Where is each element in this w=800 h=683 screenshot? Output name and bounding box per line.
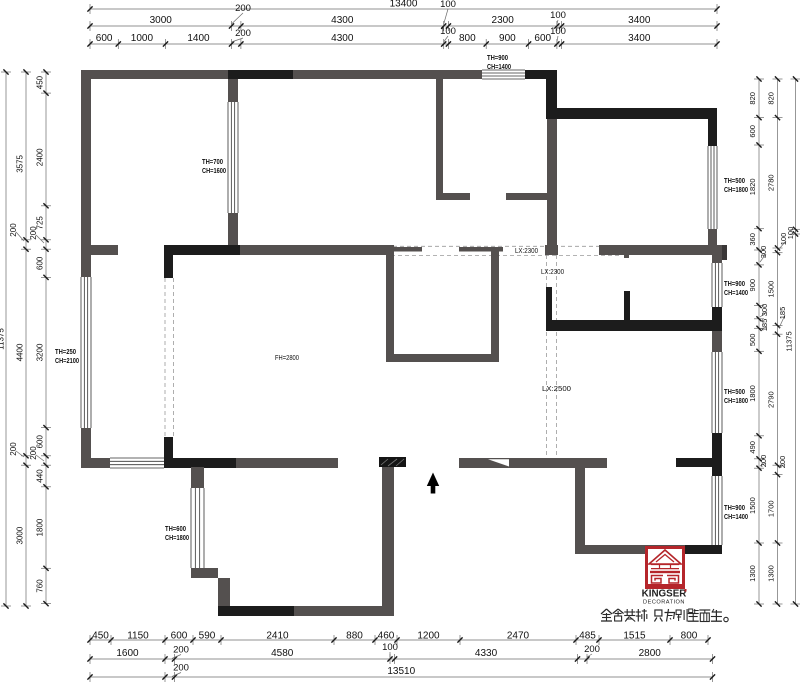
svg-text:200: 200 xyxy=(9,223,18,237)
svg-text:TH=500: TH=500 xyxy=(724,387,745,396)
svg-text:1300: 1300 xyxy=(748,565,757,582)
svg-text:760: 760 xyxy=(36,579,45,593)
svg-text:1500: 1500 xyxy=(748,497,757,514)
svg-text:13510: 13510 xyxy=(387,666,415,677)
svg-text:200: 200 xyxy=(235,28,251,39)
svg-text:200: 200 xyxy=(9,442,18,456)
svg-text:200: 200 xyxy=(173,663,189,674)
svg-text:200: 200 xyxy=(759,455,768,468)
svg-text:CH=1400: CH=1400 xyxy=(487,62,511,71)
svg-text:100: 100 xyxy=(550,26,566,37)
svg-text:TH=500: TH=500 xyxy=(724,176,745,185)
svg-text:200: 200 xyxy=(29,446,38,460)
svg-text:1000: 1000 xyxy=(131,33,154,44)
svg-text:4300: 4300 xyxy=(331,15,354,26)
svg-text:1300: 1300 xyxy=(767,565,776,582)
svg-text:200: 200 xyxy=(584,644,600,655)
svg-text:2790: 2790 xyxy=(767,391,776,408)
svg-text:800: 800 xyxy=(681,631,698,642)
svg-text:600: 600 xyxy=(96,33,113,44)
svg-text:820: 820 xyxy=(767,92,776,105)
svg-text:TH=600: TH=600 xyxy=(165,524,186,533)
svg-text:2780: 2780 xyxy=(767,174,776,191)
svg-text:TH=700: TH=700 xyxy=(202,157,223,166)
svg-text:1800: 1800 xyxy=(36,518,45,536)
svg-text:1515: 1515 xyxy=(623,631,646,642)
svg-text:DECORATION: DECORATION xyxy=(643,600,685,606)
svg-text:360: 360 xyxy=(748,233,757,246)
svg-text:600: 600 xyxy=(748,125,757,138)
svg-text:TH=900: TH=900 xyxy=(724,279,745,288)
svg-text:13400: 13400 xyxy=(390,0,418,10)
svg-text:3200: 3200 xyxy=(36,343,45,361)
svg-text:1800: 1800 xyxy=(748,385,757,402)
svg-text:200: 200 xyxy=(173,645,189,656)
svg-text:CH=1800: CH=1800 xyxy=(724,396,748,405)
svg-text:4300: 4300 xyxy=(331,33,354,44)
svg-text:600: 600 xyxy=(36,434,45,448)
svg-text:100: 100 xyxy=(550,10,566,21)
svg-text:KINGSER: KINGSER xyxy=(642,589,687,600)
svg-text:11375: 11375 xyxy=(0,328,6,350)
svg-text:200: 200 xyxy=(235,3,251,14)
svg-text:3400: 3400 xyxy=(628,15,651,26)
svg-text:CH=1600: CH=1600 xyxy=(202,166,226,175)
svg-text:TH=250: TH=250 xyxy=(55,347,76,356)
svg-text:485: 485 xyxy=(579,631,596,642)
svg-text:2470: 2470 xyxy=(507,631,530,642)
svg-text:200: 200 xyxy=(29,226,38,240)
svg-text:200: 200 xyxy=(778,456,787,469)
svg-text:185: 185 xyxy=(760,319,769,332)
svg-text:820: 820 xyxy=(748,92,757,105)
svg-text:2800: 2800 xyxy=(639,648,662,659)
svg-text:2400: 2400 xyxy=(36,148,45,166)
svg-text:600: 600 xyxy=(171,631,188,642)
svg-text:880: 880 xyxy=(346,631,363,642)
svg-text:2410: 2410 xyxy=(266,631,289,642)
svg-text:2300: 2300 xyxy=(492,15,515,26)
svg-text:1600: 1600 xyxy=(116,648,139,659)
svg-text:CH=1800: CH=1800 xyxy=(724,185,748,194)
svg-text:590: 590 xyxy=(199,631,216,642)
svg-text:450: 450 xyxy=(92,631,109,642)
svg-text:900: 900 xyxy=(499,33,516,44)
svg-text:CH=1800: CH=1800 xyxy=(165,533,189,542)
svg-text:1200: 1200 xyxy=(417,631,440,642)
svg-text:FH=2800: FH=2800 xyxy=(275,353,299,362)
svg-text:3575: 3575 xyxy=(16,154,25,172)
svg-text:LX:2300: LX:2300 xyxy=(541,267,564,276)
svg-text:185: 185 xyxy=(778,307,787,320)
svg-text:4580: 4580 xyxy=(271,648,294,659)
svg-text:11375: 11375 xyxy=(785,331,794,351)
svg-text:1700: 1700 xyxy=(767,500,776,517)
svg-text:600: 600 xyxy=(36,256,45,270)
svg-text:100: 100 xyxy=(786,227,795,240)
svg-text:1150: 1150 xyxy=(127,631,149,642)
svg-text:100: 100 xyxy=(440,26,456,37)
svg-text:TH=900: TH=900 xyxy=(487,53,508,62)
svg-text:100: 100 xyxy=(382,642,398,653)
svg-text:460: 460 xyxy=(378,631,395,642)
svg-text:3000: 3000 xyxy=(150,15,173,26)
svg-text:490: 490 xyxy=(748,441,757,454)
svg-text:4400: 4400 xyxy=(16,343,25,361)
svg-text:LX:2500: LX:2500 xyxy=(542,384,571,393)
svg-text:3000: 3000 xyxy=(16,526,25,544)
svg-text:1400: 1400 xyxy=(187,33,210,44)
svg-text:TH=900: TH=900 xyxy=(724,503,745,512)
svg-text:600: 600 xyxy=(534,33,551,44)
svg-text:CH=1400: CH=1400 xyxy=(724,288,748,297)
svg-text:440: 440 xyxy=(36,469,45,483)
svg-text:1500: 1500 xyxy=(767,281,776,298)
svg-text:900: 900 xyxy=(748,279,757,292)
svg-text:LX:2300: LX:2300 xyxy=(515,246,538,255)
svg-text:3400: 3400 xyxy=(628,33,651,44)
svg-text:4330: 4330 xyxy=(475,648,498,659)
svg-text:450: 450 xyxy=(36,75,45,89)
svg-text:800: 800 xyxy=(459,33,476,44)
svg-text:CH=2100: CH=2100 xyxy=(55,356,79,365)
svg-text:100: 100 xyxy=(440,0,456,10)
svg-text:CH=1400: CH=1400 xyxy=(724,512,748,521)
svg-text:300: 300 xyxy=(759,246,768,259)
svg-text:1820: 1820 xyxy=(748,179,757,196)
svg-text:300: 300 xyxy=(760,304,769,317)
svg-text:500: 500 xyxy=(748,334,757,347)
